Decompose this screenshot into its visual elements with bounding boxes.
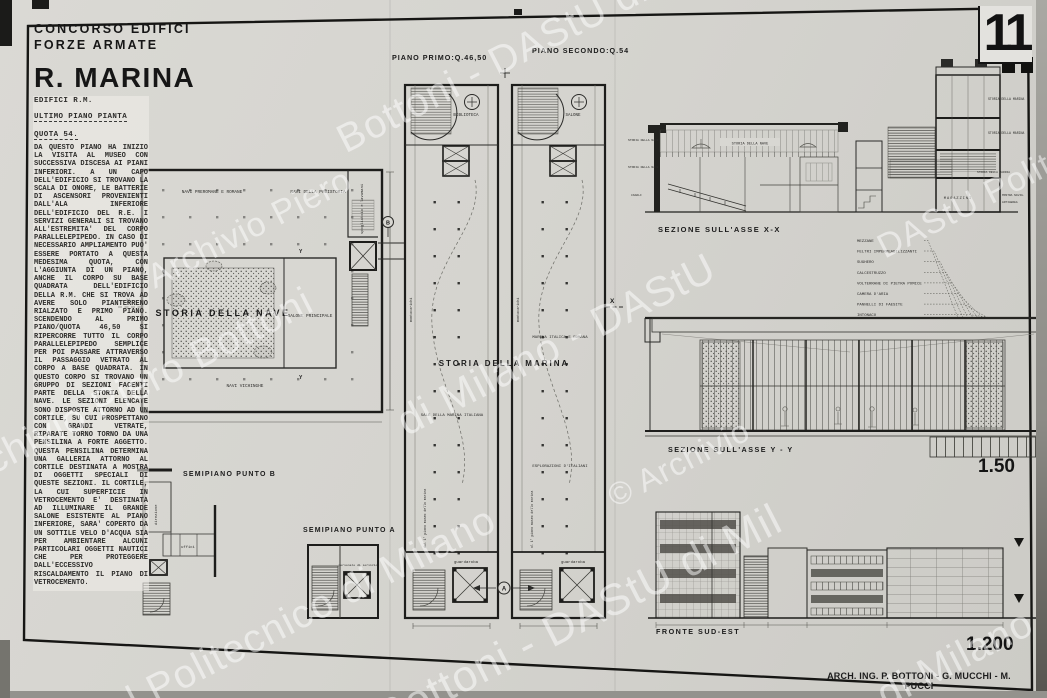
label-spogliatoio: spogliatoio e lavamani — [360, 183, 365, 234]
material-3: CALCESTRUZZO — [857, 272, 886, 276]
material-2: SUGHERO — [857, 261, 874, 265]
scan-artifact-mark — [32, 0, 49, 9]
section-xx-caption: SEZIONE SULL'ASSE X-X — [658, 225, 781, 234]
notes-heading-3: QUOTA 54. — [34, 131, 78, 140]
photo-edge-corner-bl — [0, 640, 10, 698]
description-column: EDIFICI R.M. ULTIMO PIANO PIANTA QUOTA 5… — [33, 96, 149, 591]
semipiano-b-title: SEMIPIANO PUNTO B — [183, 471, 276, 478]
label-xx-left-3: CANALI — [631, 194, 642, 197]
material-6: PANNELLI DI FAESITE — [857, 304, 903, 308]
notes-heading-2: ULTIMO PIANO PIANTA — [34, 113, 127, 122]
scan-artifact-mark — [514, 9, 522, 15]
notes-heading-1: EDIFICI R.M. — [34, 97, 148, 105]
label-montacarichi-2: montacarichi — [516, 298, 521, 322]
label-direzione: direzione — [154, 504, 159, 525]
plate-number: 11 — [978, 6, 1032, 64]
label-biblioteca: BIBLIOTECA — [453, 114, 479, 118]
sheet-title: R. MARINA — [34, 62, 195, 94]
label-xx-left-2: STORIA DELLA NAVE — [628, 166, 659, 169]
competition-title-line1: CONCORSO EDIFICI — [34, 22, 195, 38]
label-salone: SALONE — [565, 114, 581, 118]
label-uffici: uffici — [181, 545, 195, 550]
semipiano-b-plan: SEMIPIANO PUNTO B direzione uffici — [137, 470, 276, 615]
label-tall-floor2: STORIA DELLA MARINA — [988, 131, 1024, 135]
semipiano-a-title: SEMIPIANO PUNTO A — [303, 527, 396, 534]
marker-b: B — [386, 221, 390, 227]
label-esplorazioni: ESPLORAZIONI D'ITALIANI — [532, 464, 587, 469]
competition-title-line2: FORZE ARMATE — [34, 38, 195, 54]
material-4: VOLTERRANE DI PIETRA POMICE — [857, 282, 922, 286]
route-note-2: al 1° piano museo della marina — [530, 491, 534, 548]
label-navi-preromane: NAVI PREROMANE E ROMANE — [182, 190, 243, 195]
scale-1-50: 1.50 — [978, 456, 1015, 477]
elevation-caption: FRONTE SUD-EST — [656, 627, 740, 636]
materials-legend: MEZZANE FELTRI IMPERMEABILIZZANTI SUGHER… — [857, 240, 993, 318]
label-navi-vichinghe: NAVI VICHINGHE — [227, 384, 264, 389]
scan-artifact-corner — [0, 0, 12, 46]
label-tall-floor3: STORIA DELLA MARINA — [988, 97, 1024, 101]
photo-edge-right — [1036, 0, 1047, 698]
marker-a: A — [502, 587, 507, 593]
label-xx-storia-nave: STORIA DELLA NAVE — [732, 143, 769, 147]
material-5: CAMERA D'ARIA — [857, 292, 889, 297]
label-guardaroba-2: guardaroba — [561, 560, 586, 565]
material-0: MEZZANE — [857, 240, 874, 244]
title-block: CONCORSO EDIFICI FORZE ARMATE R. MARINA — [34, 22, 195, 94]
label-montacarichi-1: montacarichi — [409, 298, 414, 322]
scanned-drawing-photo: STORIA DELLA NAVE SALONE PRINCIPALE NAVI… — [0, 0, 1047, 698]
label-xx-left-1: STORIA DELLA NAVE — [628, 139, 659, 142]
